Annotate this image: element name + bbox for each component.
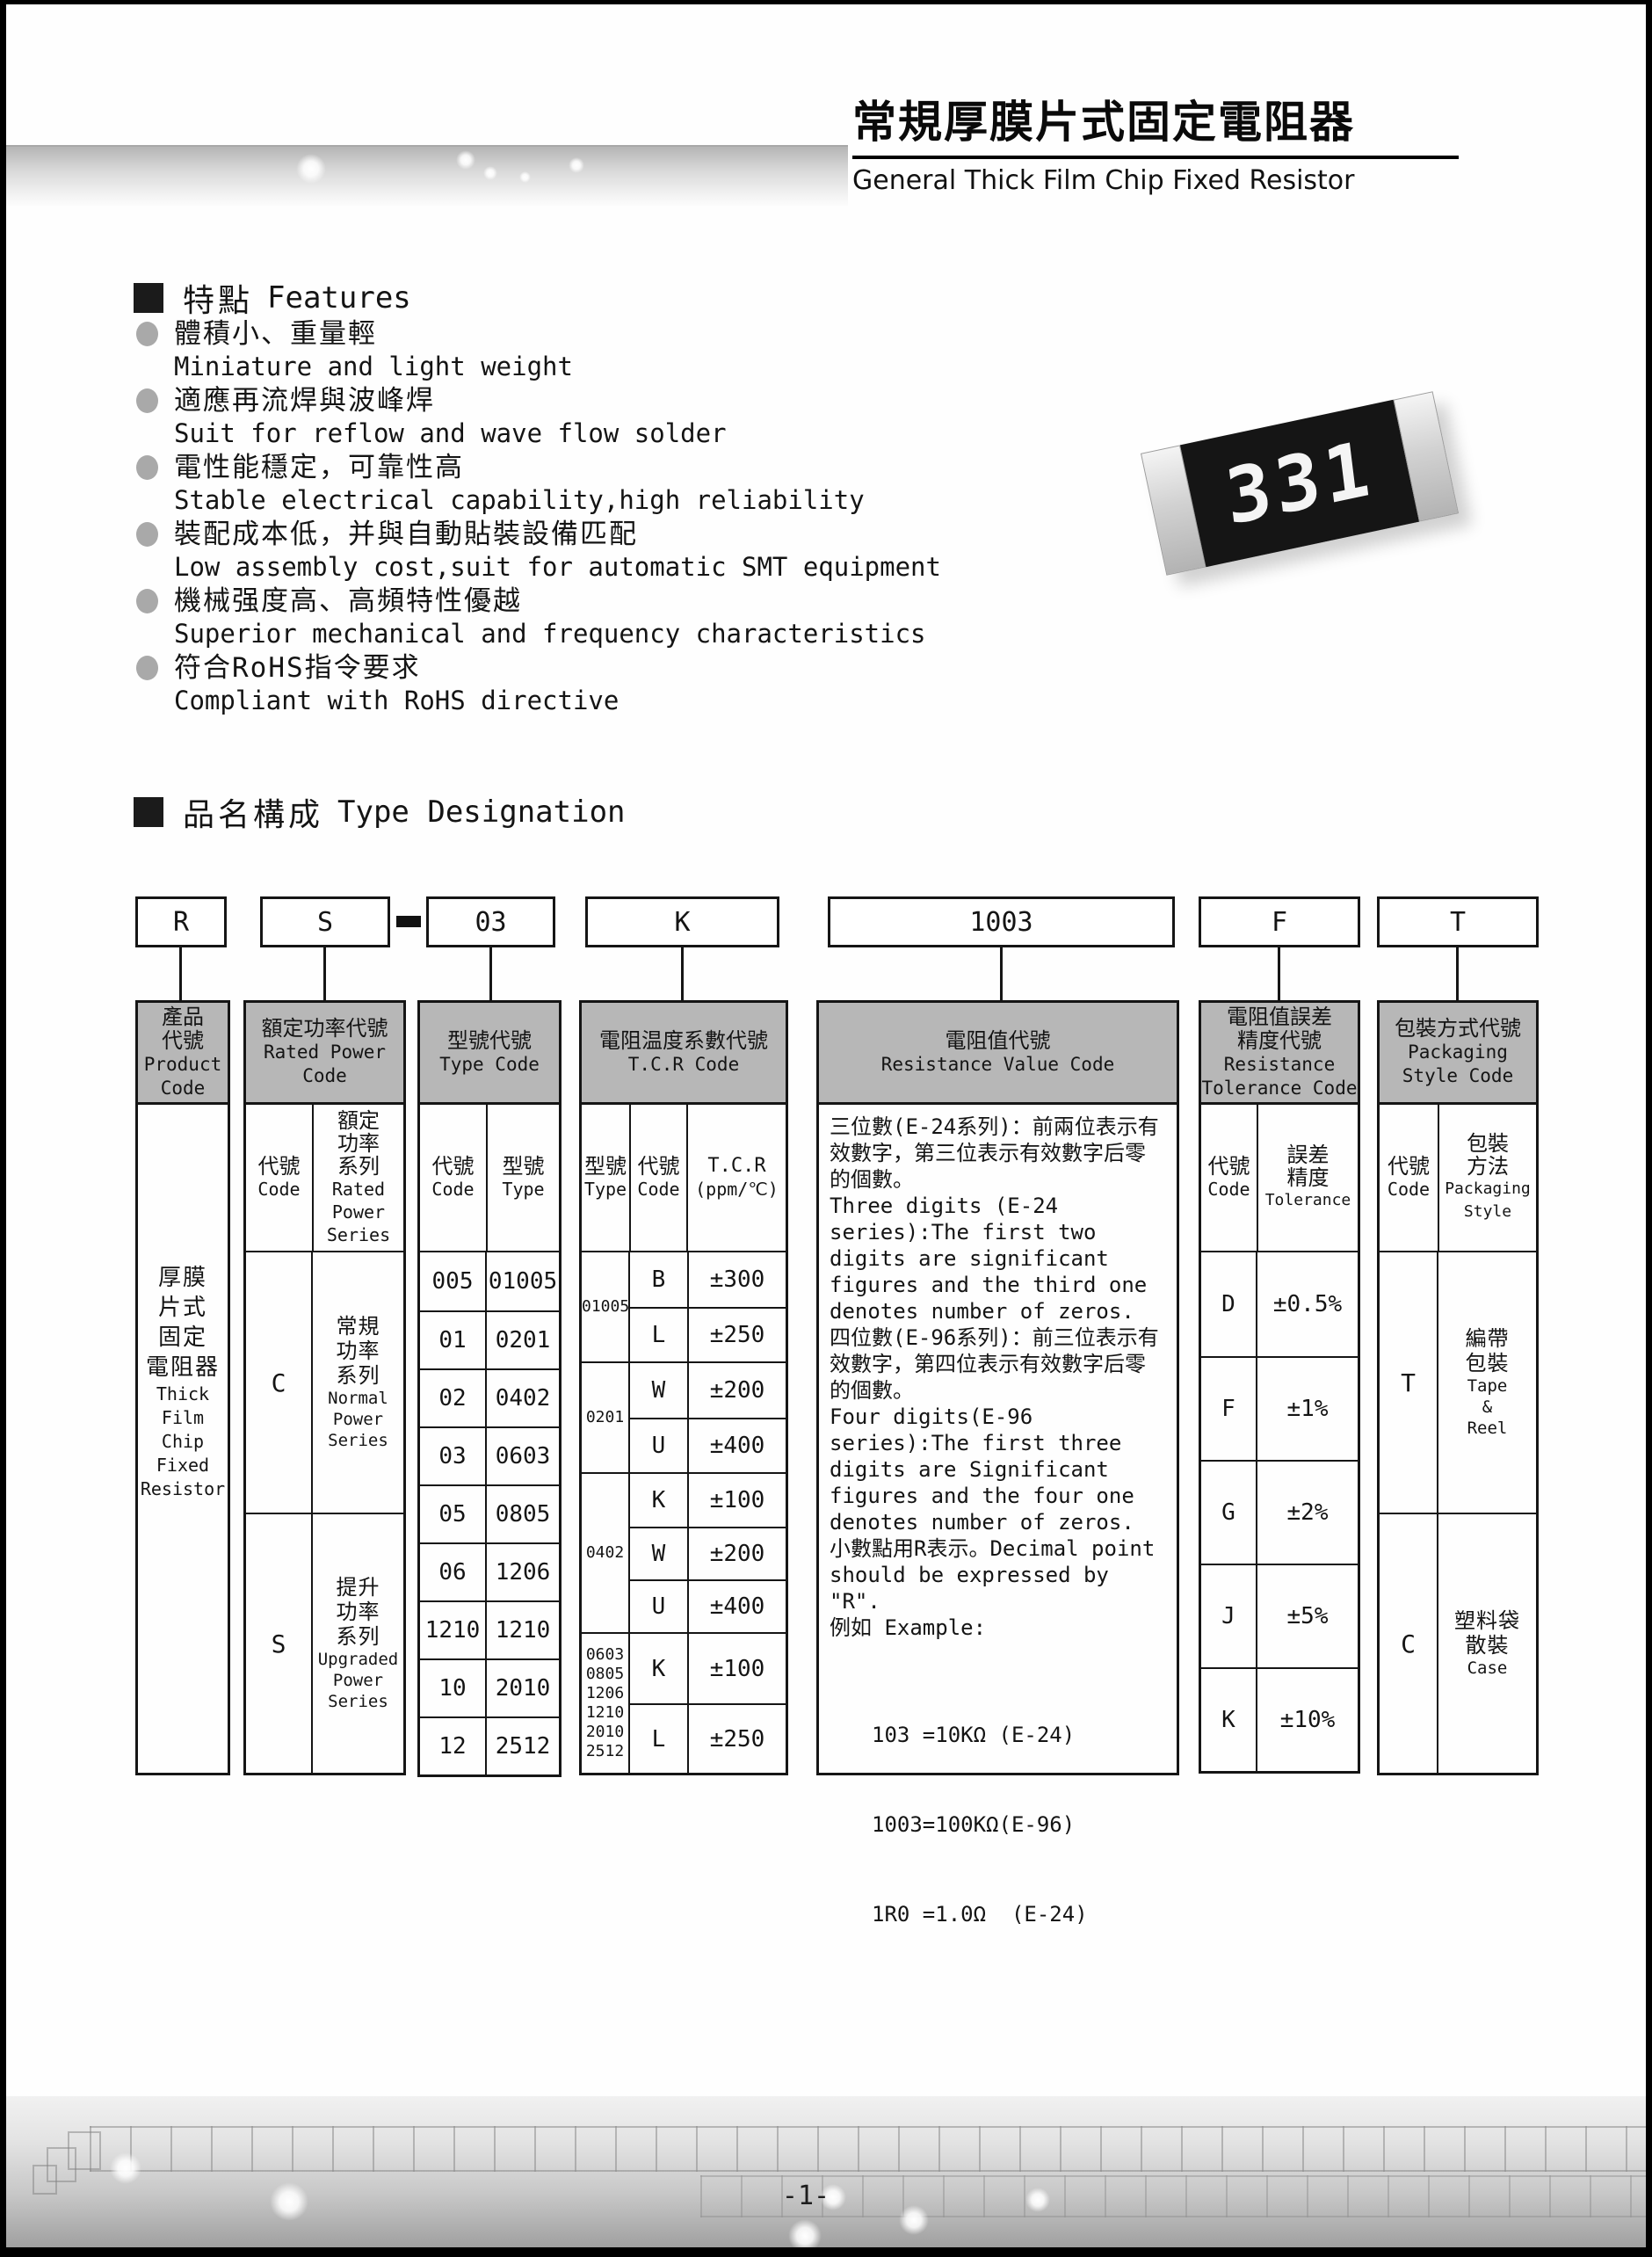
resistance-paragraph: 例如 Example:: [830, 1615, 1166, 1641]
tcr-group-type: 0402: [582, 1474, 630, 1632]
power-series: 提升 功率 系列 Upgraded Power Series: [313, 1514, 403, 1773]
cell-text: Series: [313, 1691, 403, 1712]
table-row: C 塑料袋 散裝 Case: [1380, 1513, 1536, 1773]
sparkle-icon: [483, 166, 497, 180]
cell-text: 電阻器: [138, 1353, 228, 1383]
table-row: S 提升 功率 系列 Upgraded Power Series: [246, 1513, 403, 1773]
cell-text: 2512: [582, 1742, 628, 1761]
code-separator-dash: [396, 916, 421, 927]
table-row: 05 0805: [420, 1484, 559, 1542]
connector-line-packaging: [1456, 947, 1459, 1000]
cell-text: Film: [138, 1406, 228, 1430]
features-heading: 特點 Features: [134, 275, 411, 321]
tcr-value: ±100: [689, 1474, 786, 1527]
feature-en: Suit for reflow and wave flow solder: [174, 417, 727, 449]
header-line: Type: [582, 1178, 629, 1201]
power-sub-series: 額定 功率 系列 Rated Power Series: [314, 1105, 403, 1251]
header-line: 代號: [1380, 1155, 1438, 1178]
header-line: 包裝: [1439, 1132, 1536, 1155]
cell-text: 厚膜: [138, 1263, 228, 1293]
page-number: -1-: [727, 2181, 885, 2211]
sparkle-icon: [519, 171, 531, 183]
header-line: 額定功率代號: [246, 1017, 403, 1041]
type-code-cell: 005: [420, 1252, 487, 1310]
type-code-cell: 01: [420, 1312, 487, 1368]
feature-en: Miniature and light weight: [174, 351, 573, 382]
feature-en: Low assembly cost,suit for automatic SMT…: [174, 551, 941, 583]
type-size-cell: 1210: [487, 1602, 559, 1658]
feature-item: 裝配成本低，并與自動貼裝設備匹配 Low assembly cost,suit …: [136, 518, 1103, 583]
bullet-icon: [136, 656, 158, 680]
type-header: 型號代號 Type Code: [417, 1000, 562, 1105]
chip-body: 331: [1180, 400, 1419, 567]
resistance-paragraph: 四位數(E-96系列)：前三位表示有效數字，第四位表示有效數字后零的個數。: [830, 1324, 1166, 1404]
tolerance-header: 電阻值誤差 精度代號 Resistance Tolerance Code: [1199, 1000, 1360, 1105]
section-marker-icon: [134, 283, 163, 313]
tolerance-code: J: [1201, 1565, 1257, 1667]
header-line: 型號代號: [420, 1029, 559, 1053]
header-line: 包裝方式代號: [1380, 1017, 1536, 1041]
column-rated-power-code: 額定功率代號 Rated Power Code 代號 Code 額定 功率 系列…: [243, 1000, 406, 1775]
tolerance-value: ±1%: [1257, 1358, 1358, 1460]
table-row: K ±100: [630, 1474, 786, 1527]
type-code-cell: 12: [420, 1718, 487, 1774]
type-code-cell: 1210: [420, 1602, 487, 1658]
tolerance-value: ±10%: [1257, 1669, 1358, 1771]
code-box-tolerance: F: [1199, 896, 1360, 947]
table-row: C 常規 功率 系列 Normal Power Series: [246, 1252, 403, 1513]
type-size-cell: 0201: [487, 1312, 559, 1368]
type-code-cell: 03: [420, 1428, 487, 1484]
table-row: 10 2010: [420, 1658, 559, 1716]
column-product-code: 產品 代號 Product Code 厚膜 片式 固定 電阻器 Thick Fi…: [135, 1000, 230, 1775]
header-line: 型號: [488, 1155, 559, 1178]
header-line: Code: [1380, 1178, 1438, 1201]
header-line: 精度: [1258, 1166, 1358, 1189]
header-line: 代號: [1201, 1155, 1257, 1178]
header-line: Packaging: [1439, 1178, 1536, 1201]
title-english: General Thick Film Chip Fixed Resistor: [852, 164, 1459, 198]
header-line: 型號: [582, 1155, 629, 1178]
cell-text: 0402: [582, 1543, 628, 1563]
sparkle-icon: [270, 2182, 308, 2221]
table-row: T 編帶 包裝 Tape & Reel: [1380, 1252, 1536, 1513]
table-row: U ±400: [630, 1579, 786, 1632]
cell-text: 01005: [582, 1297, 628, 1317]
cell-text: 0603: [582, 1645, 628, 1665]
type-sub-type: 型號 Type: [488, 1105, 559, 1251]
type-size-cell: 0603: [487, 1428, 559, 1484]
header-line: Series: [314, 1223, 403, 1246]
table-row: G ±2%: [1201, 1460, 1358, 1564]
type-subheader: 代號 Code 型號 Type: [417, 1105, 562, 1252]
cell-text: 散裝: [1438, 1633, 1536, 1658]
tcr-value: ±250: [689, 1309, 786, 1361]
header-line: 功率: [314, 1132, 403, 1155]
connector-line-product: [179, 947, 182, 1000]
header-line: Type: [488, 1178, 559, 1201]
footer-band: -1-: [6, 2096, 1646, 2247]
designation-heading-zh: 品名構成: [183, 789, 323, 835]
features-heading-zh: 特點: [183, 275, 253, 321]
feature-item: 電性能穩定，可靠性高 Stable electrical capability,…: [136, 451, 1103, 516]
table-row: L ±250: [630, 1703, 786, 1773]
connector-line-type: [489, 947, 492, 1000]
page-title: 常規厚膜片式固定電阻器 General Thick Film Chip Fixe…: [852, 96, 1459, 198]
tcr-group: 01005 B ±300 L ±250: [582, 1252, 786, 1361]
tcr-header: 電阻温度系數代號 T.C.R Code: [579, 1000, 788, 1105]
packaging-header: 包裝方式代號 Packaging Style Code: [1377, 1000, 1539, 1105]
code-box-power: S: [260, 896, 390, 947]
tolerance-value: ±2%: [1257, 1462, 1358, 1564]
header-line: Code: [420, 1178, 486, 1201]
cell-text: 編帶: [1438, 1326, 1536, 1351]
tcr-code: U: [630, 1581, 689, 1632]
cell-text: Upgraded: [313, 1649, 403, 1670]
table-row: 06 1206: [420, 1542, 559, 1600]
cell-text: 功率: [313, 1339, 403, 1363]
header-line: Rated: [314, 1178, 403, 1201]
feature-zh: 符合RoHS指令要求: [174, 651, 619, 685]
chip-marking: 331: [1221, 424, 1379, 542]
power-series: 常規 功率 系列 Normal Power Series: [313, 1252, 403, 1513]
type-size-cell: 01005: [487, 1252, 559, 1310]
header-line: 系列: [314, 1155, 403, 1178]
header-line: Product: [138, 1053, 228, 1077]
tcr-code: K: [630, 1634, 689, 1703]
table-row: B ±300: [630, 1252, 786, 1307]
header-line: Power: [314, 1201, 403, 1223]
feature-en: Superior mechanical and frequency charac…: [174, 618, 926, 650]
tolerance-value: ±0.5%: [1257, 1252, 1358, 1356]
product-header: 產品 代號 Product Code: [135, 1000, 230, 1105]
tcr-code: L: [630, 1705, 689, 1773]
feature-en: Compliant with RoHS directive: [174, 685, 619, 716]
type-sub-code: 代號 Code: [420, 1105, 488, 1251]
cell-text: Thick: [138, 1383, 228, 1406]
type-designation-heading: 品名構成 Type Designation: [134, 789, 626, 835]
table-row: 1210 1210: [420, 1600, 559, 1658]
tcr-sub-value: T.C.R (ppm/℃): [688, 1105, 786, 1251]
tcr-group: 0603 0805 1206 1210 2010 2512 K ±100 L ±…: [582, 1632, 786, 1773]
header-line: (ppm/℃): [688, 1178, 786, 1201]
header-line: 方法: [1439, 1155, 1536, 1178]
tcr-group: 0201 W ±200 U ±400: [582, 1361, 786, 1472]
features-list: 體積小、重量輕 Miniature and light weight 適應再流焊…: [136, 317, 1103, 718]
tolerance-code: F: [1201, 1358, 1257, 1460]
power-code: S: [246, 1514, 313, 1773]
connector-line-resistance: [1000, 947, 1003, 1000]
cell-text: Reel: [1438, 1418, 1536, 1439]
table-row: 01 0201: [420, 1310, 559, 1368]
tcr-subheader: 型號 Type 代號 Code T.C.R (ppm/℃): [579, 1105, 788, 1252]
table-row: 02 0402: [420, 1368, 559, 1426]
header-line: Tolerance: [1258, 1189, 1358, 1212]
tolerance-body: D ±0.5% F ±1% G ±2% J ±5% K ±10%: [1199, 1252, 1360, 1774]
header-line: Resistance: [1201, 1053, 1358, 1077]
table-row: K ±10%: [1201, 1667, 1358, 1771]
product-body: 厚膜 片式 固定 電阻器 Thick Film Chip Fixed Resis…: [135, 1105, 230, 1775]
feature-item: 符合RoHS指令要求 Compliant with RoHS directive: [136, 651, 1103, 716]
connector-line-tcr: [681, 947, 684, 1000]
tcr-code: K: [630, 1474, 689, 1527]
connector-line-tolerance: [1278, 947, 1280, 1000]
packaging-sub-style: 包裝 方法 Packaging Style: [1439, 1105, 1536, 1251]
feature-zh: 電性能穩定，可靠性高: [174, 451, 865, 484]
table-row: W ±200: [630, 1363, 786, 1418]
power-header: 額定功率代號 Rated Power Code: [243, 1000, 406, 1105]
header-line: Type Code: [420, 1053, 559, 1077]
resistance-header: 電阻值代號 Resistance Value Code: [816, 1000, 1179, 1105]
code-box-resistance: 1003: [828, 896, 1175, 947]
header-line: T.C.R: [688, 1155, 786, 1178]
packaging-subheader: 代號 Code 包裝 方法 Packaging Style: [1377, 1105, 1539, 1252]
type-size-cell: 0805: [487, 1486, 559, 1542]
tcr-body: 01005 B ±300 L ±250 0201: [579, 1252, 788, 1775]
cell-text: 1210: [582, 1703, 628, 1723]
cell-text: 系列: [313, 1363, 403, 1388]
tcr-sub-code: 代號 Code: [631, 1105, 688, 1251]
footer-square-pattern: [90, 2126, 1646, 2172]
cell-text: 系列: [313, 1624, 403, 1649]
feature-zh: 適應再流焊與波峰焊: [174, 384, 727, 417]
tcr-value: ±400: [689, 1581, 786, 1632]
title-underline: [852, 156, 1459, 159]
power-body: C 常規 功率 系列 Normal Power Series S 提升 功率 系…: [243, 1252, 406, 1775]
column-tcr-code: 電阻温度系數代號 T.C.R Code 型號 Type 代號 Code T.C.…: [579, 1000, 788, 1775]
tcr-value: ±300: [689, 1252, 786, 1307]
tcr-value: ±200: [689, 1528, 786, 1579]
table-row: K ±100: [630, 1634, 786, 1703]
cell-text: Tape: [1438, 1375, 1536, 1397]
resistance-paragraph: 小數點用R表示。Decimal point should be expresse…: [830, 1535, 1166, 1615]
cell-text: 0805: [582, 1665, 628, 1684]
resistance-paragraph: 三位數(E-24系列)：前兩位表示有效數字，第三位表示有效數字后零的個數。: [830, 1114, 1166, 1193]
table-row: 005 01005: [420, 1252, 559, 1310]
tcr-group: 0402 K ±100 W ±200 U ±400: [582, 1472, 786, 1632]
sparkle-icon: [110, 2152, 141, 2184]
packaging-style: 塑料袋 散裝 Case: [1438, 1514, 1536, 1773]
example-line: 103 =10KΩ (E-24): [872, 1720, 1166, 1750]
feature-item: 體積小、重量輕 Miniature and light weight: [136, 317, 1103, 382]
bullet-icon: [136, 589, 158, 613]
tcr-code: W: [630, 1528, 689, 1579]
bullet-icon: [136, 388, 158, 413]
header-line: 誤差: [1258, 1143, 1358, 1166]
cell-text: Series: [313, 1430, 403, 1451]
cell-text: Case: [1438, 1658, 1536, 1679]
tcr-value: ±250: [689, 1705, 786, 1773]
packaging-sub-code: 代號 Code: [1380, 1105, 1439, 1251]
header-line: 代號: [631, 1155, 686, 1178]
packaging-code: C: [1380, 1514, 1438, 1773]
packaging-body: T 編帶 包裝 Tape & Reel C 塑料袋 散裝 Case: [1377, 1252, 1539, 1775]
cell-text: 常規: [313, 1314, 403, 1339]
feature-en: Stable electrical capability,high reliab…: [174, 484, 865, 516]
section-marker-icon: [134, 797, 163, 827]
resistance-body: 三位數(E-24系列)：前兩位表示有效數字，第三位表示有效數字后零的個數。 Th…: [816, 1105, 1179, 1775]
type-size-cell: 0402: [487, 1370, 559, 1426]
tcr-sub-type: 型號 Type: [582, 1105, 631, 1251]
packaging-style: 編帶 包裝 Tape & Reel: [1438, 1252, 1536, 1513]
bullet-icon: [136, 322, 158, 346]
table-row: F ±1%: [1201, 1356, 1358, 1460]
power-subheader: 代號 Code 額定 功率 系列 Rated Power Series: [243, 1105, 406, 1252]
power-sub-code: 代號 Code: [246, 1105, 314, 1251]
resistor-chip: 331: [1141, 391, 1459, 576]
table-row: 03 0603: [420, 1426, 559, 1484]
tcr-group-type: 01005: [582, 1252, 630, 1361]
feature-item: 機械强度高、高頻特性優越 Superior mechanical and fre…: [136, 584, 1103, 650]
cell-text: 片式: [138, 1293, 228, 1323]
cell-text: Power: [313, 1409, 403, 1430]
cell-text: 提升: [313, 1575, 403, 1600]
table-row: U ±400: [630, 1418, 786, 1472]
tolerance-subheader: 代號 Code 誤差 精度 Tolerance: [1199, 1105, 1360, 1252]
tcr-code: U: [630, 1419, 689, 1472]
cell-text: Chip: [138, 1430, 228, 1454]
sparkle-icon: [899, 2205, 929, 2235]
header-line: Style Code: [1380, 1064, 1536, 1088]
sparkle-icon: [1025, 2188, 1050, 2212]
table-row: D ±0.5%: [1201, 1252, 1358, 1356]
code-box-type: 03: [426, 896, 555, 947]
feature-item: 適應再流焊與波峰焊 Suit for reflow and wave flow …: [136, 384, 1103, 449]
tcr-group-type: 0201: [582, 1363, 630, 1472]
footer-square-decoration: [68, 2131, 101, 2170]
type-body: 005 01005 01 0201 02 0402 03 0603 05 080…: [417, 1252, 562, 1777]
header-line: Code: [246, 1064, 403, 1088]
cell-text: Resistor: [138, 1477, 228, 1501]
tcr-value: ±400: [689, 1419, 786, 1472]
tolerance-code: G: [1201, 1462, 1257, 1564]
header-line: Tolerance Code: [1201, 1077, 1358, 1100]
cell-text: 0201: [582, 1408, 628, 1427]
header-gradient-band: [6, 145, 848, 207]
cell-text: 固定: [138, 1323, 228, 1353]
packaging-code: T: [1380, 1252, 1438, 1513]
example-line: 1003=100KΩ(E-96): [872, 1810, 1166, 1840]
connector-line-power: [323, 947, 326, 1000]
header-line: Style: [1439, 1201, 1536, 1223]
column-tolerance-code: 電阻值誤差 精度代號 Resistance Tolerance Code 代號 …: [1199, 1000, 1360, 1774]
cell-text: Power: [313, 1670, 403, 1691]
feature-zh: 體積小、重量輕: [174, 317, 573, 351]
table-row: 12 2512: [420, 1716, 559, 1774]
type-size-cell: 1206: [487, 1544, 559, 1600]
resistor-chip-image: 331: [1140, 391, 1491, 602]
type-code-cell: 02: [420, 1370, 487, 1426]
header-line: 代號: [138, 1029, 228, 1053]
table-row: J ±5%: [1201, 1564, 1358, 1667]
header-line: 額定: [314, 1109, 403, 1132]
header-line: 電阻值代號: [819, 1029, 1177, 1053]
tcr-group-type: 0603 0805 1206 1210 2010 2512: [582, 1634, 630, 1773]
column-packaging-style-code: 包裝方式代號 Packaging Style Code 代號 Code 包裝 方…: [1377, 1000, 1539, 1775]
cell-text: 塑料袋: [1438, 1608, 1536, 1633]
tolerance-value: ±5%: [1257, 1565, 1358, 1667]
resistance-examples: 103 =10KΩ (E-24) 1003=100KΩ(E-96) 1R0 =1…: [872, 1660, 1166, 1989]
header-line: Rated Power: [246, 1041, 403, 1064]
designation-heading-en: Type Designation: [337, 795, 626, 830]
sparkle-icon: [296, 154, 326, 184]
sparkle-icon: [569, 157, 584, 173]
table-row: W ±200: [630, 1527, 786, 1579]
header-line: 代號: [420, 1155, 486, 1178]
title-chinese: 常規厚膜片式固定電阻器: [852, 96, 1459, 149]
header-line: Code: [631, 1178, 686, 1201]
feature-zh: 裝配成本低，并與自動貼裝設備匹配: [174, 518, 941, 551]
cell-text: 包裝: [1438, 1351, 1536, 1375]
cell-text: Fixed: [138, 1454, 228, 1477]
table-row: L ±250: [630, 1307, 786, 1361]
header-line: Code: [246, 1178, 312, 1201]
tcr-code: W: [630, 1363, 689, 1418]
bullet-icon: [136, 522, 158, 547]
header-line: T.C.R Code: [582, 1053, 786, 1077]
cell-text: 功率: [313, 1600, 403, 1624]
tolerance-code: K: [1201, 1669, 1257, 1771]
tolerance-sub-value: 誤差 精度 Tolerance: [1258, 1105, 1358, 1251]
sparkle-icon: [456, 150, 475, 170]
example-line: 1R0 =1.0Ω (E-24): [872, 1899, 1166, 1929]
type-size-cell: 2010: [487, 1660, 559, 1716]
resistance-paragraph: Four digits(E-96 series):The first three…: [830, 1404, 1166, 1535]
header-line: 產品: [138, 1005, 228, 1029]
power-code: C: [246, 1252, 313, 1513]
resistance-paragraph: Three digits (E-24 series):The first two…: [830, 1193, 1166, 1324]
tolerance-sub-code: 代號 Code: [1201, 1105, 1258, 1251]
datasheet-page: 常規厚膜片式固定電阻器 General Thick Film Chip Fixe…: [0, 0, 1652, 2257]
header-line: Packaging: [1380, 1041, 1536, 1064]
cell-text: Normal: [313, 1388, 403, 1409]
header-line: 電阻温度系數代號: [582, 1029, 786, 1053]
tcr-code: B: [630, 1252, 689, 1307]
header-line: 精度代號: [1201, 1029, 1358, 1053]
code-box-product: R: [135, 896, 227, 947]
sparkle-icon: [788, 2219, 822, 2253]
code-box-tcr: K: [585, 896, 779, 947]
cell-text: 1206: [582, 1684, 628, 1703]
type-code-cell: 05: [420, 1486, 487, 1542]
header-line: Code: [1201, 1178, 1257, 1201]
features-heading-en: Features: [267, 280, 411, 316]
header-line: 代號: [246, 1155, 312, 1178]
footer-square-decoration: [33, 2165, 57, 2195]
tcr-value: ±200: [689, 1363, 786, 1418]
column-type-code: 型號代號 Type Code 代號 Code 型號 Type 005 01005…: [417, 1000, 562, 1777]
tolerance-code: D: [1201, 1252, 1257, 1356]
type-code-cell: 10: [420, 1660, 487, 1716]
cell-text: 2010: [582, 1723, 628, 1742]
cell-text: &: [1438, 1397, 1536, 1418]
column-resistance-value-code: 電阻值代號 Resistance Value Code 三位數(E-24系列)：…: [816, 1000, 1179, 1775]
type-size-cell: 2512: [487, 1718, 559, 1774]
header-line: 電阻值誤差: [1201, 1005, 1358, 1029]
header-line: Resistance Value Code: [819, 1053, 1177, 1077]
code-box-packaging: T: [1377, 896, 1539, 947]
header-line: Code: [138, 1077, 228, 1100]
feature-zh: 機械强度高、高頻特性優越: [174, 584, 926, 618]
bullet-icon: [136, 455, 158, 480]
tcr-code: L: [630, 1309, 689, 1361]
tcr-value: ±100: [689, 1634, 786, 1703]
type-code-cell: 06: [420, 1544, 487, 1600]
